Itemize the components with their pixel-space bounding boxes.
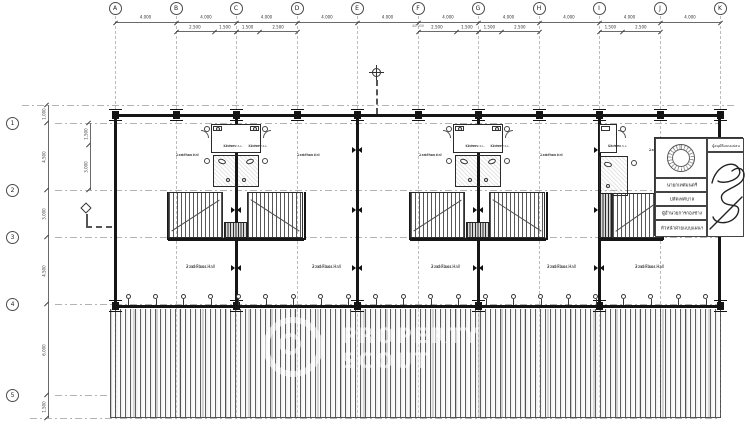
column-grid-bubble: E — [351, 2, 364, 15]
hall-level-text: +2.80 F.2.S.L. — [547, 265, 569, 270]
railing-post-stem — [541, 299, 542, 305]
hall-level-text: +2.80 F.2.S.L. — [186, 265, 208, 270]
tag-circle-icon — [504, 158, 510, 164]
tag-circle-icon — [446, 158, 452, 164]
grid-line-vertical — [539, 16, 540, 309]
signatory-label: ปลัดเทศบาล — [670, 197, 695, 204]
wall-tie-icon — [358, 265, 362, 271]
sink-icon — [495, 127, 499, 131]
row-grid-bubble: 2 — [6, 184, 19, 197]
kitchen-level-text: +2.78 F.2.S.L. — [249, 145, 268, 149]
railing-post-stem — [266, 299, 267, 305]
column-grid-bubble: I — [593, 2, 606, 15]
grid-line-horizontal — [55, 123, 720, 124]
sub-dimension-label: 1.500 — [461, 25, 472, 30]
sink-icon — [226, 178, 230, 182]
tag-circle-icon — [204, 158, 210, 164]
railing-post-stem — [706, 299, 707, 305]
railing-post-stem — [486, 299, 487, 305]
railing-post-stem — [431, 299, 432, 305]
sub-dimension-label: 1.500 — [242, 25, 253, 30]
grid-line-vertical-roof — [539, 309, 540, 418]
dimension-label: 4.000 — [140, 15, 151, 20]
column-grid-bubble: B — [170, 2, 183, 15]
signature-cell — [707, 152, 744, 237]
sub-dimension-label: 2.500 — [189, 25, 200, 30]
kitchen-level-text: +2.78 F.2.S.L. — [491, 145, 510, 149]
sub-dimension-label: 3.000 — [84, 161, 89, 172]
dimension-label: 4.000 — [442, 15, 453, 20]
kitchen-level-text: +2.78 F.2.S.L. — [466, 145, 485, 149]
hall-level-text: +2.80 F.2.S.L. — [431, 265, 453, 270]
grid-line-horizontal — [22, 105, 734, 106]
sub-dimension-line — [599, 31, 660, 32]
kitchen-counter — [601, 126, 610, 131]
stair-flight — [489, 192, 545, 238]
sub-dimension-label: 1.500 — [484, 25, 495, 30]
column-symbol — [475, 111, 482, 119]
stair-diagonal — [171, 199, 220, 231]
column-grid-bubble: K — [714, 2, 727, 15]
wall-tie-icon — [231, 265, 235, 271]
grid-line-vertical-roof — [297, 309, 298, 418]
dimension-label: 4.000 — [261, 15, 272, 20]
column-symbol — [596, 302, 603, 310]
row-grid-bubble: 4 — [6, 298, 19, 311]
tag-circle-icon — [620, 126, 626, 132]
sub-dimension-line — [418, 31, 478, 32]
column-symbol — [475, 302, 482, 310]
grid-line-vertical-roof — [236, 309, 237, 418]
signatory-row: นายกเทศมนตรี — [655, 178, 707, 192]
dimension-label: 4.000 — [503, 15, 514, 20]
stair-diagonal — [250, 199, 299, 232]
hall-level-text: +2.80 F.2.S.L. — [540, 154, 559, 158]
stair-landing — [224, 222, 248, 238]
section-marker-cross — [376, 65, 377, 80]
column-symbol — [294, 111, 301, 119]
sub-dimension-label: 1.500 — [605, 25, 616, 30]
grid-line-vertical — [418, 16, 419, 309]
railing-post-stem — [211, 299, 212, 305]
railing-post-stem — [238, 299, 239, 305]
grid-line-vertical-roof — [357, 309, 358, 418]
wall-tie-icon — [594, 265, 598, 271]
section-cut-line — [86, 226, 112, 228]
column-symbol — [112, 302, 119, 310]
wall-tie-icon — [358, 147, 362, 153]
column-symbol — [536, 111, 543, 119]
dimension-label: 4.000 — [321, 15, 332, 20]
railing-post-stem — [376, 299, 377, 305]
sub-dimension-label: 1.500 — [219, 25, 230, 30]
dimension-label: 4.000 — [382, 15, 393, 20]
railing-post-stem — [568, 299, 569, 305]
sink-icon — [468, 178, 472, 182]
signatory-label: ผู้อำนวยการกองช่าง — [662, 211, 702, 218]
kitchen-level-text: +2.78 F.2.S.L. — [608, 145, 627, 149]
railing-post-stem — [678, 299, 679, 305]
railing-post-stem — [596, 299, 597, 305]
sub-dimension-label: 2.500 — [272, 25, 283, 30]
railing-post-stem — [458, 299, 459, 305]
column-symbol — [233, 111, 240, 119]
stair-diagonal — [413, 199, 462, 231]
title-block: ผู้อนุมัติแบบแปลน นายกเทศมนตรี ปลัดเทศบา… — [654, 137, 743, 236]
wall-tie-icon — [231, 207, 235, 213]
railing-post-stem — [183, 299, 184, 305]
wall-tie-icon — [600, 265, 604, 271]
sub-dimension-label: 2.500 — [635, 25, 646, 30]
approval-label: ผู้อนุมัติแบบแปลน — [712, 143, 740, 149]
exterior-wall-bottom — [115, 305, 721, 308]
railing-post-stem — [651, 299, 652, 305]
railing-post-stem — [293, 299, 294, 305]
stair-wall — [168, 238, 304, 241]
hall-level-text: +2.80 F.2.S.L. — [635, 265, 657, 270]
wall-tie-icon — [237, 207, 241, 213]
grid-line-vertical-roof — [660, 309, 661, 418]
stair-landing — [599, 193, 612, 238]
stair-flight — [410, 192, 465, 238]
row-grid-bubble: 1 — [6, 117, 19, 130]
grid-line-vertical-roof — [478, 309, 479, 418]
wall-tie-icon — [594, 147, 598, 153]
roof-hatch — [110, 309, 721, 418]
dimension-label: 4.000 — [624, 15, 635, 20]
tag-circle-icon — [262, 158, 268, 164]
approval-cell: ผู้อนุมัติแบบแปลน — [707, 138, 744, 152]
stair-flight — [247, 192, 303, 238]
wall-tie-icon — [479, 265, 483, 271]
column-symbol — [112, 111, 119, 119]
dimension-label: 4.500 — [42, 265, 47, 276]
column-symbol — [415, 111, 422, 119]
section-cut-line — [86, 214, 88, 226]
column-symbol — [717, 111, 724, 119]
sub-dimension-label: 2.500 — [514, 25, 525, 30]
dimension-label: 3.000 — [42, 208, 47, 219]
grid-line-vertical-roof — [115, 309, 116, 418]
signature-icon — [708, 153, 745, 238]
column-symbol — [354, 302, 361, 310]
column-grid-bubble: H — [533, 2, 546, 15]
wall-tie-icon — [352, 207, 356, 213]
signatory-row: ผู้อำนวยการกองช่าง — [655, 206, 707, 220]
sub-dimension-label: 1.500 — [84, 128, 89, 139]
column-grid-bubble: G — [472, 2, 485, 15]
hall-level-text: +2.80 F.2.S.L. — [176, 154, 195, 158]
stair-side-wall — [304, 192, 306, 240]
column-grid-bubble: D — [291, 2, 304, 15]
row-grid-bubble: 5 — [6, 389, 19, 402]
wall-tie-icon — [352, 147, 356, 153]
sub-dimension-line — [478, 31, 539, 32]
column-symbol — [173, 111, 180, 119]
sink-icon — [458, 127, 462, 131]
signatory-row: หัวหน้าฝ่ายแบบแผนฯ — [655, 220, 707, 237]
wall-tie-icon — [473, 207, 477, 213]
grid-line-vertical-roof — [418, 309, 419, 418]
exterior-wall-left — [114, 114, 117, 308]
title-block-seal-icon — [667, 144, 695, 172]
grid-line-vertical-roof — [599, 309, 600, 418]
column-symbol — [354, 111, 361, 119]
column-symbol — [657, 111, 664, 119]
dimension-line — [48, 105, 49, 418]
sink-icon — [253, 127, 257, 131]
grid-line-horizontal — [30, 418, 720, 419]
floor-plan-sheet: ABCDEFGHIJK12345 4.0004.0004.0004.0004.0… — [0, 0, 750, 424]
sink-icon — [242, 178, 246, 182]
grid-line-vertical-roof — [720, 309, 721, 418]
column-grid-bubble: F — [412, 2, 425, 15]
stair-landing — [466, 222, 490, 238]
dimension-label: 4.000 — [200, 15, 211, 20]
stair-diagonal — [615, 201, 658, 232]
stair-side-wall — [546, 192, 548, 240]
column-symbol — [717, 302, 724, 310]
column-grid-bubble: J — [654, 2, 667, 15]
dimension-label: 4.000 — [563, 15, 574, 20]
overall-dimension-label: 40.000 — [412, 24, 424, 28]
stair-flight — [168, 192, 223, 238]
stair-wall — [599, 238, 663, 241]
kitchen-level-text: +2.78 F.2.S.L. — [224, 145, 243, 149]
sub-dimension-line — [90, 123, 91, 190]
grid-line-vertical — [176, 16, 177, 309]
wall-tie-icon — [358, 207, 362, 213]
title-block-seal-inner-icon — [672, 149, 690, 167]
wall-tie-icon — [479, 207, 483, 213]
railing-post-stem — [513, 299, 514, 305]
tag-circle-icon — [631, 160, 637, 166]
dimension-label: 1.000 — [42, 108, 47, 119]
sub-dimension-label: 2.500 — [431, 25, 442, 30]
sub-dimension-line — [176, 31, 236, 32]
grid-line-vertical — [297, 16, 298, 309]
wall-tie-icon — [352, 265, 356, 271]
dimension-label: 4.500 — [42, 151, 47, 162]
signatory-label: หัวหน้าฝ่ายแบบแผนฯ — [661, 226, 703, 233]
dimension-label: 6.000 — [42, 344, 47, 355]
railing-post-stem — [348, 299, 349, 305]
column-grid-bubble: C — [230, 2, 243, 15]
signatory-label: นายกเทศมนตรี — [667, 183, 697, 190]
dimension-label: 1.500 — [42, 401, 47, 412]
row-grid-bubble: 3 — [6, 231, 19, 244]
signatory-row: ปลัดเทศบาล — [655, 192, 707, 206]
title-block-seal-cell — [655, 138, 707, 178]
sub-dimension-line — [236, 31, 297, 32]
railing-post-stem — [623, 299, 624, 305]
column-grid-bubble: A — [109, 2, 122, 15]
sink-icon — [484, 178, 488, 182]
dimension-label: 4.000 — [684, 15, 695, 20]
sink-icon — [606, 184, 610, 188]
hall-level-text: +2.80 F.2.S.L. — [312, 265, 334, 270]
railing-post-stem — [403, 299, 404, 305]
grid-line-vertical-roof — [176, 309, 177, 418]
railing-post-stem — [156, 299, 157, 305]
wall-tie-icon — [237, 265, 241, 271]
stair-wall — [410, 238, 546, 241]
column-symbol — [596, 111, 603, 119]
railing-post-stem — [321, 299, 322, 305]
stair-diagonal — [492, 199, 541, 232]
section-cut-line — [376, 80, 378, 114]
wall-tie-icon — [473, 265, 477, 271]
hall-level-text: +2.80 F.2.S.L. — [419, 154, 438, 158]
sink-icon — [216, 127, 220, 131]
railing-post-stem — [128, 299, 129, 305]
hall-level-text: +2.80 F.2.S.L. — [297, 154, 316, 158]
wall-tie-icon — [594, 207, 598, 213]
